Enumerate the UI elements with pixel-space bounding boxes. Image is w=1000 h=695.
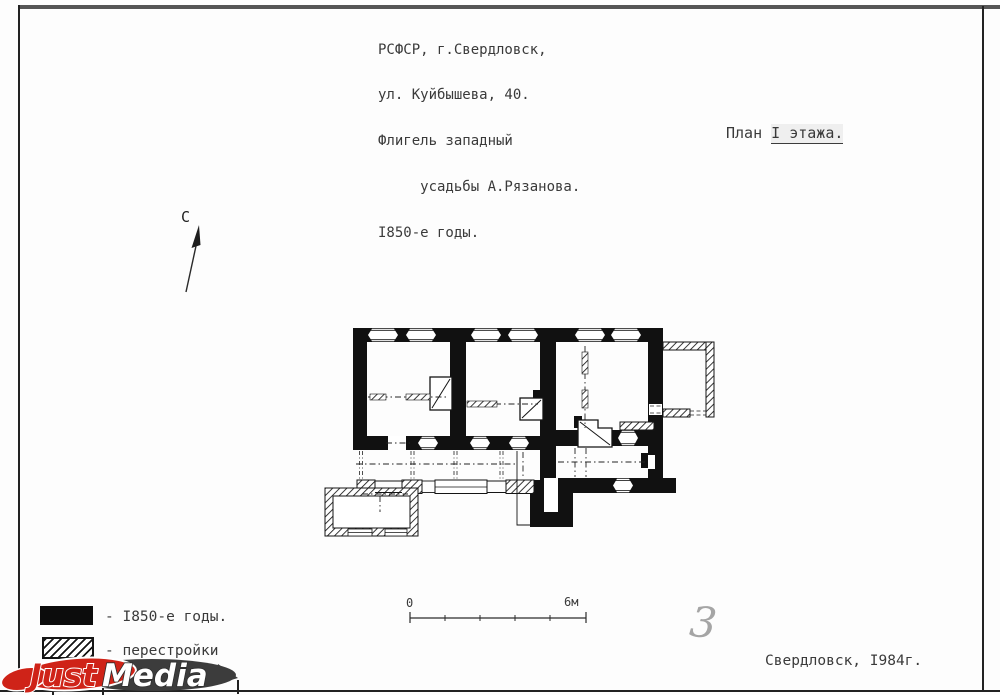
veranda-steps <box>435 480 487 494</box>
plan-title: План I этажа. <box>726 124 843 142</box>
frame-top-edge <box>18 5 1000 9</box>
title-line: РСФСР, г.Свердловск, <box>378 43 580 58</box>
title-line: I850-е годы. <box>378 226 580 241</box>
veranda-posts <box>360 451 504 479</box>
scale-bar: 0 6м <box>400 593 600 625</box>
title-line: ул. Куйбышева, 40. <box>378 88 580 103</box>
annex-interior <box>333 496 410 528</box>
page-number: 3 <box>688 597 720 649</box>
scale-end-label: 6м <box>564 595 578 609</box>
scanned-drawing-sheet: РСФСР, г.Свердловск, ул. Куйбышева, 40. … <box>0 0 1000 695</box>
watermark-media: Media <box>102 658 208 694</box>
title-line: усадьбы А.Рязанова. <box>378 180 580 195</box>
stamp-line: Свердловск, I984г. <box>765 654 966 669</box>
scale-zero-label: 0 <box>406 596 413 610</box>
title-block: РСФСР, г.Свердловск, ул. Куйбышева, 40. … <box>378 12 580 272</box>
legend-label-1850s: - I850-е годы. <box>105 609 227 625</box>
floor-plan-drawing <box>318 318 722 550</box>
watermark-just: Just <box>24 658 98 694</box>
watermark-logo: Just Media <box>0 654 240 695</box>
plan-title-prefix: План <box>726 124 771 142</box>
frame-left-edge <box>18 5 20 691</box>
legend-swatch-solid-1850s <box>40 606 93 625</box>
stamp-block: Свердловск, I984г. Обмер: Бржезовская О.… <box>765 623 966 695</box>
title-line: Флигель западный <box>378 134 580 149</box>
window-face-lines <box>370 330 639 490</box>
north-arrow-icon <box>180 220 206 298</box>
frame-right-edge <box>982 6 984 691</box>
plan-title-underlined: I этажа. <box>771 124 843 144</box>
